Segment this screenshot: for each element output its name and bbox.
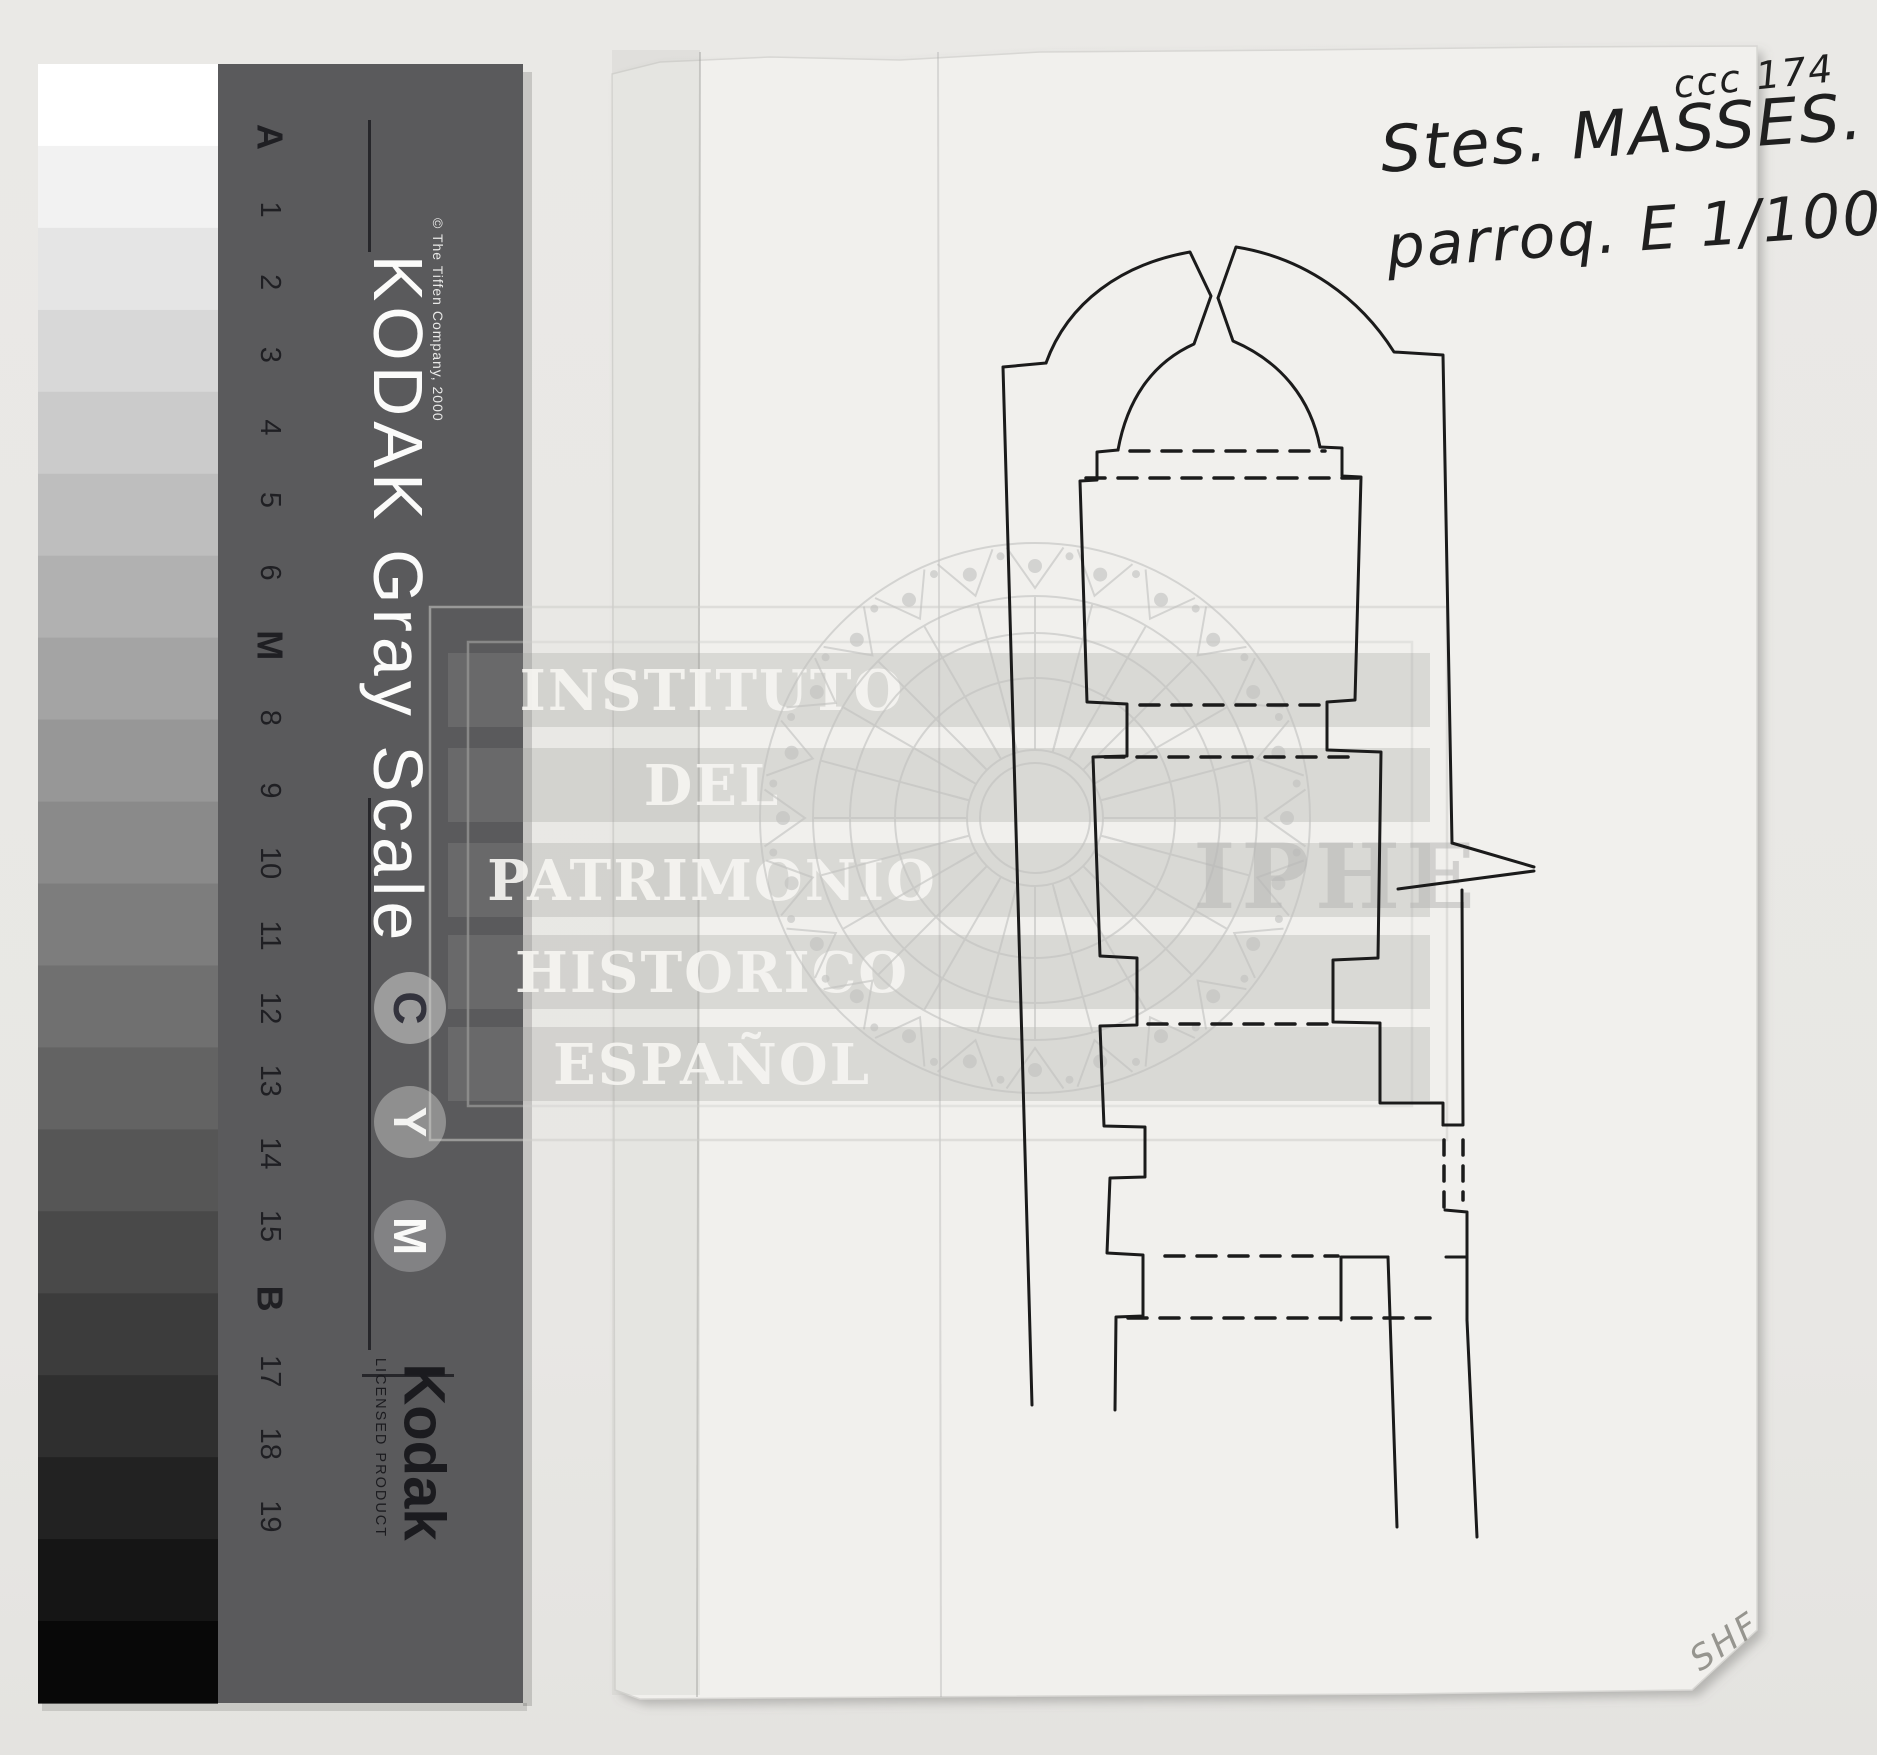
gray-patch-11 <box>38 966 218 1049</box>
rose-ornament-bud <box>1206 989 1220 1003</box>
rose-ornament-bud <box>1280 811 1294 825</box>
gray-patch-18 <box>38 1539 218 1622</box>
gray-patch-12 <box>38 1047 218 1130</box>
yellow-badge-letter: Y <box>384 1107 436 1138</box>
step-label-2: 2 <box>254 274 286 290</box>
rose-ornament-dot <box>1192 605 1200 613</box>
watermark-band-1 <box>448 748 1430 822</box>
rose-ornament-dot <box>1132 570 1140 578</box>
licensed-product-label: LICENSED PRODUCT <box>372 1358 388 1538</box>
rose-ornament-bud <box>1028 1063 1042 1077</box>
rose-ornament-dot <box>1275 713 1283 721</box>
gray-patch-9 <box>38 802 218 885</box>
gray-patch-16 <box>38 1375 218 1458</box>
step-label-15: 15 <box>254 1210 286 1242</box>
archival-photo: A123456M89101112131415B171819 KODAK Gray… <box>0 0 1877 1755</box>
rose-ornament-dot <box>787 713 795 721</box>
rose-ornament-bud <box>776 811 790 825</box>
step-label-A: A <box>250 124 291 150</box>
rose-ornament-bud <box>810 685 824 699</box>
card-shadow-bottom <box>42 1703 527 1711</box>
gray-patch-2 <box>38 228 218 311</box>
rose-ornament-dot <box>822 975 830 983</box>
rose-ornament-dot <box>1132 1058 1140 1066</box>
gray-patch-column <box>38 64 218 1704</box>
watermark-word-0: INSTITUTO <box>520 658 905 724</box>
rose-ornament-dot <box>1066 552 1074 560</box>
rose-ornament-bud <box>1246 937 1260 951</box>
gray-patch-14 <box>38 1211 218 1294</box>
cym-badges: C Y M <box>374 972 446 1272</box>
rose-ornament-dot <box>769 849 777 857</box>
step-label-14: 14 <box>254 1137 286 1169</box>
rose-ornament-bud <box>850 989 864 1003</box>
rose-ornament-dot <box>870 605 878 613</box>
rose-ornament-bud <box>1028 559 1042 573</box>
rose-ornament-dot <box>930 570 938 578</box>
step-label-12: 12 <box>254 992 286 1024</box>
rose-ornament-dot <box>1293 780 1301 788</box>
step-label-17: 17 <box>254 1355 286 1387</box>
kodak-logo: Kodak <box>392 1363 457 1541</box>
rule-line-top <box>368 120 371 252</box>
step-label-8: 8 <box>254 710 286 726</box>
step-label-1: 1 <box>254 202 286 218</box>
gray-patch-5 <box>38 474 218 557</box>
iphe-acronym: IPHE <box>1193 824 1480 930</box>
rose-ornament-dot <box>1066 1076 1074 1084</box>
watermark-word-2: PATRIMONIO <box>487 848 937 914</box>
gray-patch-6 <box>38 556 218 639</box>
watermark-word-4: ESPAÑOL <box>553 1032 871 1098</box>
rose-ornament-bud <box>1154 1029 1168 1043</box>
rose-ornament-bud <box>902 593 916 607</box>
card-title: KODAK Gray Scale <box>359 255 437 946</box>
gray-patch-7 <box>38 638 218 721</box>
rose-ornament-dot <box>997 1076 1005 1084</box>
gray-patch-8 <box>38 720 218 803</box>
rose-ornament-bud <box>1206 633 1220 647</box>
rose-ornament-bud <box>1154 593 1168 607</box>
gray-patch-4 <box>38 392 218 475</box>
gray-patch-1 <box>38 146 218 229</box>
step-label-9: 9 <box>254 782 286 798</box>
rose-ornament-bud <box>785 746 799 760</box>
rose-ornament-bud <box>963 1054 977 1068</box>
rose-ornament-bud <box>850 633 864 647</box>
gray-patch-13 <box>38 1129 218 1212</box>
gray-patch-3 <box>38 310 218 393</box>
rose-ornament-dot <box>769 780 777 788</box>
step-label-11: 11 <box>254 921 286 951</box>
rose-ornament-dot <box>1240 653 1248 661</box>
step-label-10: 10 <box>254 847 286 879</box>
rose-ornament-bud <box>785 876 799 890</box>
step-label-18: 18 <box>254 1428 286 1460</box>
rose-ornament-dot <box>787 915 795 923</box>
step-label-M: M <box>250 630 291 660</box>
step-label-13: 13 <box>254 1065 286 1097</box>
gray-patch-19 <box>38 1621 218 1704</box>
rose-ornament-bud <box>963 568 977 582</box>
card-copyright: © The Tiffen Company, 2000 <box>430 218 446 422</box>
cyan-badge-letter: C <box>384 991 436 1024</box>
rose-ornament-dot <box>1240 975 1248 983</box>
magenta-badge-letter: M <box>384 1217 436 1255</box>
rose-ornament-dot <box>870 1023 878 1031</box>
rose-ornament-dot <box>997 552 1005 560</box>
gray-patch-15 <box>38 1293 218 1376</box>
step-label-6: 6 <box>254 565 286 581</box>
step-label-B: B <box>250 1286 291 1312</box>
rose-ornament-dot <box>930 1058 938 1066</box>
rose-ornament-bud <box>902 1029 916 1043</box>
rose-ornament-bud <box>810 937 824 951</box>
gray-patch-17 <box>38 1457 218 1540</box>
step-label-5: 5 <box>254 492 286 508</box>
gray-patch-0 <box>38 64 218 147</box>
step-label-19: 19 <box>254 1500 286 1532</box>
rose-ornament-bud <box>1246 685 1260 699</box>
rose-ornament-dot <box>822 653 830 661</box>
rose-ornament-bud <box>1093 568 1107 582</box>
gray-patch-10 <box>38 884 218 967</box>
step-label-3: 3 <box>254 347 286 363</box>
step-label-4: 4 <box>254 419 286 435</box>
